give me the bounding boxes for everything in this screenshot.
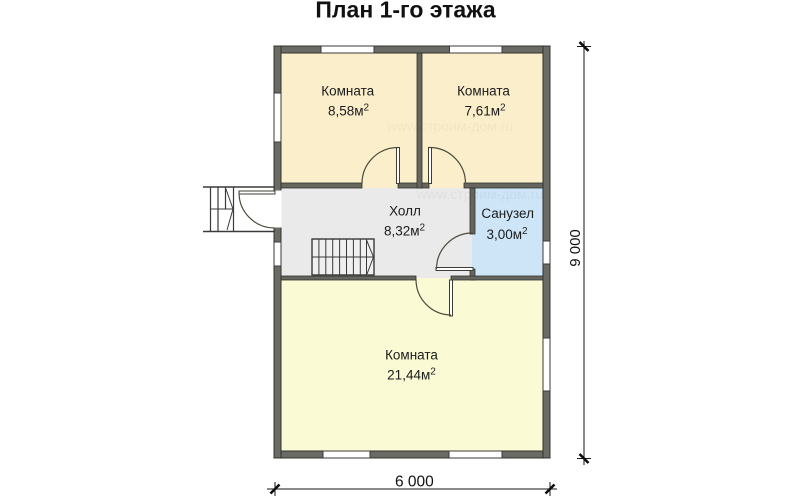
svg-text:8,32м2: 8,32м2 bbox=[384, 223, 426, 239]
svg-text:Санузел: Санузел bbox=[481, 206, 534, 221]
svg-text:3,00м2: 3,00м2 bbox=[486, 226, 528, 242]
svg-text:Комната: Комната bbox=[321, 84, 374, 99]
svg-text:Комната: Комната bbox=[385, 348, 438, 363]
svg-text:www.строим-дом.ru: www.строим-дом.ru bbox=[416, 186, 543, 202]
svg-text:Холл: Холл bbox=[389, 204, 421, 219]
svg-text:www.строим-дом.ru: www.строим-дом.ru bbox=[386, 118, 513, 134]
svg-text:8,58м2: 8,58м2 bbox=[328, 103, 370, 119]
svg-text:7,61м2: 7,61м2 bbox=[464, 103, 506, 119]
svg-text:21,44м2: 21,44м2 bbox=[387, 367, 436, 383]
svg-text:Комната: Комната bbox=[457, 84, 510, 99]
svg-text:9 000: 9 000 bbox=[567, 229, 584, 267]
svg-text:6 000: 6 000 bbox=[395, 474, 434, 491]
svg-text:План 1-го этажа: План 1-го этажа bbox=[315, 0, 495, 23]
